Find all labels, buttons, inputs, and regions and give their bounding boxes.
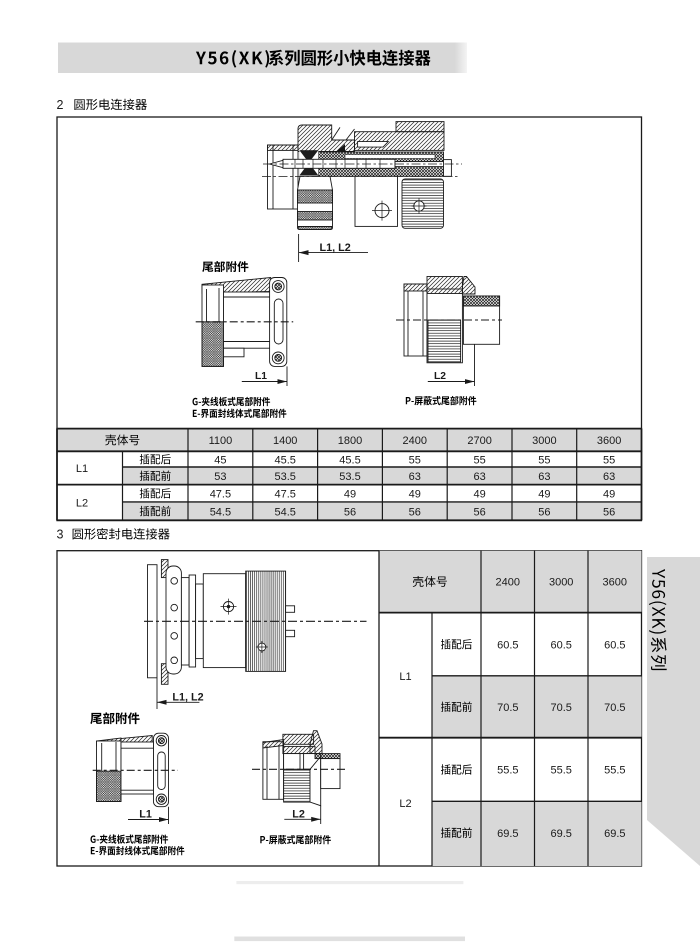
svg-text:47.5: 47.5 [274,489,295,501]
svg-text:3600: 3600 [603,577,627,589]
svg-text:L2: L2 [434,371,446,382]
svg-text:63: 63 [538,471,550,483]
svg-text:60.5: 60.5 [497,639,518,651]
svg-text:56: 56 [344,506,356,518]
svg-text:L2: L2 [76,498,88,510]
svg-text:56: 56 [538,506,550,518]
svg-text:47.5: 47.5 [210,489,231,501]
svg-text:1100: 1100 [209,435,233,447]
svg-text:45.5: 45.5 [339,454,360,466]
svg-text:L1: L1 [76,463,88,475]
svg-text:69.5: 69.5 [550,828,571,840]
svg-text:53.5: 53.5 [274,471,295,483]
svg-text:L1, L2: L1, L2 [320,242,351,254]
svg-text:55.5: 55.5 [550,765,571,777]
svg-text:49: 49 [344,489,356,501]
svg-text:L1: L1 [255,371,267,382]
svg-text:55: 55 [603,454,615,466]
svg-text:1400: 1400 [273,435,297,447]
svg-text:56: 56 [603,506,615,518]
svg-text:L1: L1 [399,671,411,683]
svg-text:3000: 3000 [549,577,573,589]
svg-text:3: 3 [57,528,64,542]
svg-text:70.5: 70.5 [604,702,625,714]
svg-text:70.5: 70.5 [497,702,518,714]
svg-text:54.5: 54.5 [210,506,231,518]
svg-text:55.5: 55.5 [497,765,518,777]
svg-text:2700: 2700 [467,435,491,447]
svg-text:49: 49 [603,489,615,501]
svg-text:63: 63 [409,471,421,483]
svg-text:63: 63 [473,471,485,483]
svg-text:63: 63 [603,471,615,483]
svg-text:53.5: 53.5 [339,471,360,483]
svg-text:2400: 2400 [496,577,520,589]
svg-text:55: 55 [473,454,485,466]
svg-text:L1, L2: L1, L2 [172,692,203,704]
svg-text:2400: 2400 [403,435,427,447]
svg-text:70.5: 70.5 [550,702,571,714]
svg-text:45: 45 [214,454,226,466]
svg-text:45.5: 45.5 [274,454,295,466]
svg-text:54.5: 54.5 [274,506,295,518]
svg-text:55: 55 [409,454,421,466]
svg-text:3600: 3600 [597,435,621,447]
svg-text:L2: L2 [292,809,305,821]
svg-text:3000: 3000 [532,435,556,447]
svg-text:69.5: 69.5 [604,828,625,840]
svg-text:53: 53 [214,471,226,483]
svg-text:49: 49 [538,489,550,501]
svg-text:60.5: 60.5 [550,639,571,651]
svg-text:56: 56 [409,506,421,518]
svg-text:49: 49 [409,489,421,501]
svg-text:2: 2 [57,98,64,112]
svg-text:69.5: 69.5 [497,828,518,840]
svg-text:L2: L2 [399,798,411,810]
svg-text:56: 56 [473,506,485,518]
svg-text:49: 49 [473,489,485,501]
svg-text:1800: 1800 [338,435,362,447]
svg-text:55: 55 [538,454,550,466]
svg-text:55.5: 55.5 [604,765,625,777]
svg-text:L1: L1 [139,809,152,821]
svg-text:60.5: 60.5 [604,639,625,651]
